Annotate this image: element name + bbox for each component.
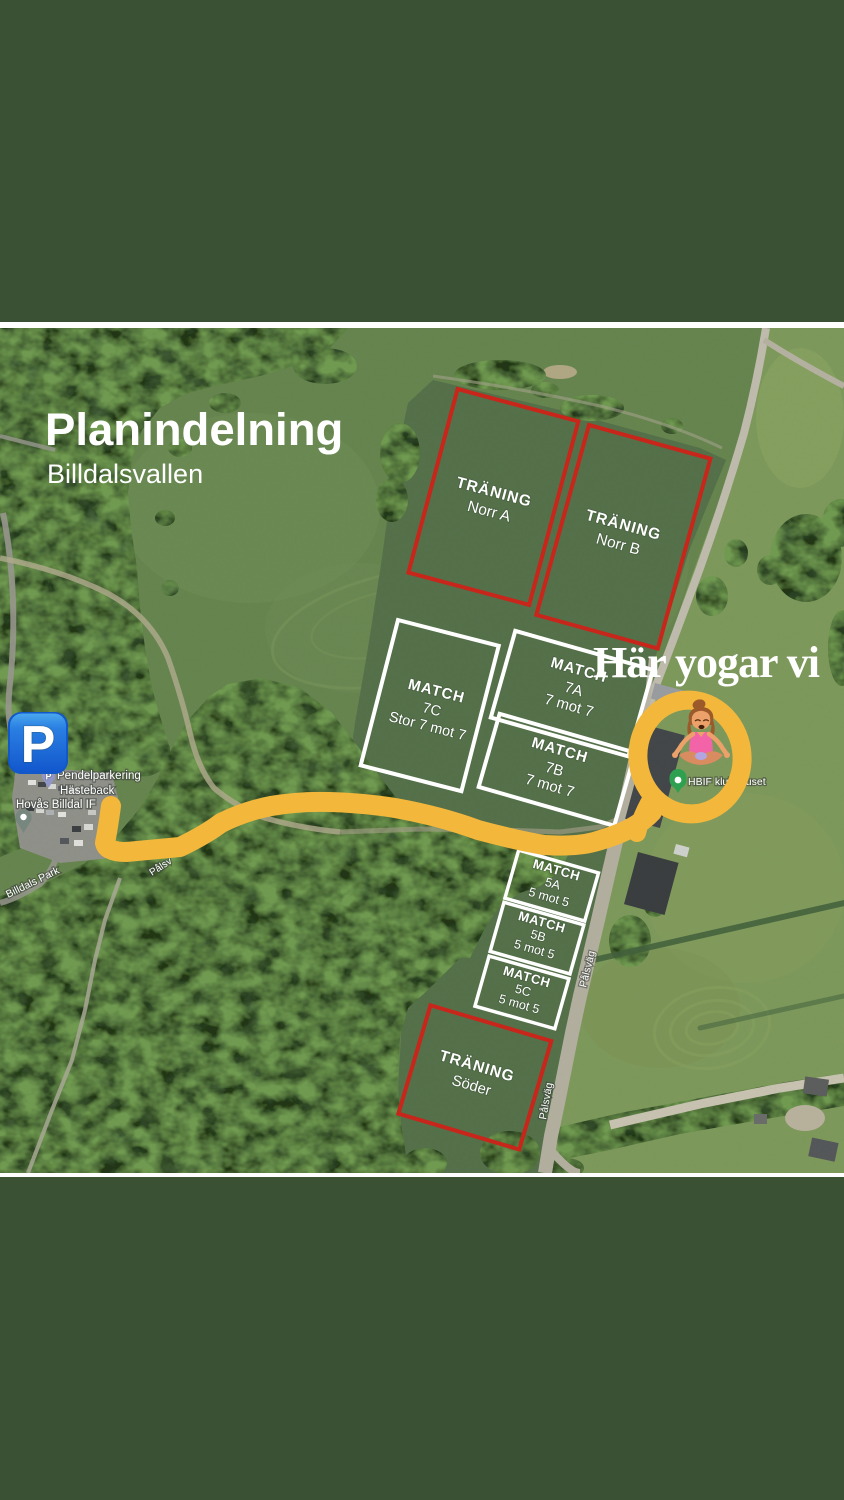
svg-text:Billdalsvallen: Billdalsvallen [47, 459, 203, 489]
svg-text:Här yogar vi: Här yogar vi [593, 638, 820, 687]
svg-text:Hästeback: Hästeback [60, 785, 115, 797]
svg-text:Planindelning: Planindelning [45, 404, 343, 455]
svg-text:P: P [21, 716, 56, 774]
svg-text:Hovås Billdal IF: Hovås Billdal IF [16, 799, 96, 811]
svg-text:Pendelparkering: Pendelparkering [57, 770, 141, 782]
